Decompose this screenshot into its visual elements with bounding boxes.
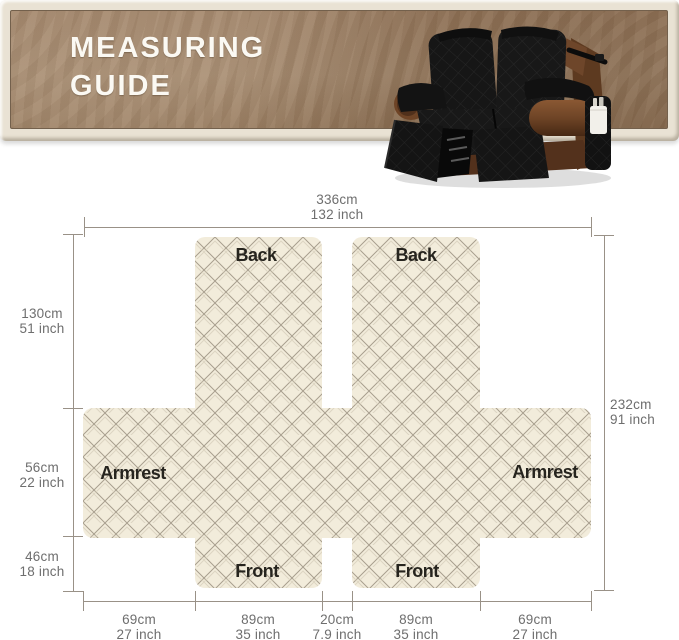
dim-label-armrest-right-width: 69cm 27 inch bbox=[496, 612, 574, 640]
tick bbox=[594, 235, 614, 236]
dim-value-inch: 35 inch bbox=[377, 627, 455, 640]
dim-value-inch: 22 inch bbox=[10, 475, 74, 490]
page-title-line2: GUIDE bbox=[70, 67, 265, 105]
tick bbox=[480, 591, 481, 611]
tick bbox=[591, 591, 592, 611]
dim-value-cm: 56cm bbox=[10, 460, 74, 475]
tick bbox=[352, 591, 353, 611]
tick bbox=[591, 217, 592, 237]
dim-value-inch: 51 inch bbox=[10, 321, 74, 336]
page-title-line1: MEASURING bbox=[70, 29, 265, 67]
tick bbox=[63, 536, 83, 537]
dim-value-inch: 35 inch bbox=[219, 627, 297, 640]
tick bbox=[84, 217, 85, 237]
dim-value-cm: 89cm bbox=[219, 612, 297, 627]
dim-value-cm: 46cm bbox=[10, 549, 74, 564]
dim-value-cm: 69cm bbox=[496, 612, 574, 627]
dim-label-total-width: 336cm 132 inch bbox=[287, 192, 387, 222]
tick bbox=[322, 591, 323, 611]
product-photo bbox=[381, 10, 635, 192]
dim-label-front-height: 46cm 18 inch bbox=[10, 549, 74, 579]
dim-label-center-gap-width: 20cm 7.9 inch bbox=[298, 612, 376, 640]
dim-label-total-height: 232cm 91 inch bbox=[610, 397, 674, 427]
label-back-right: Back bbox=[366, 245, 466, 266]
dim-label-armrest-height: 56cm 22 inch bbox=[10, 460, 74, 490]
recliner-sofa-illustration bbox=[381, 10, 635, 192]
dim-value-inch: 132 inch bbox=[287, 207, 387, 222]
label-back-left: Back bbox=[206, 245, 306, 266]
dim-value-inch: 91 inch bbox=[610, 412, 674, 427]
tick bbox=[594, 590, 614, 591]
dim-label-armrest-left-width: 69cm 27 inch bbox=[100, 612, 178, 640]
dim-label-seat-left-width: 89cm 35 inch bbox=[219, 612, 297, 640]
dim-value-cm: 232cm bbox=[610, 397, 674, 412]
tick bbox=[63, 234, 83, 235]
dim-value-inch: 27 inch bbox=[100, 627, 178, 640]
label-armrest-right: Armrest bbox=[495, 462, 595, 483]
dim-value-cm: 20cm bbox=[298, 612, 376, 627]
label-armrest-left: Armrest bbox=[83, 463, 183, 484]
dim-value-cm: 69cm bbox=[100, 612, 178, 627]
page-title: MEASURING GUIDE bbox=[70, 29, 265, 105]
dim-value-cm: 89cm bbox=[377, 612, 455, 627]
tick bbox=[83, 591, 84, 611]
dim-value-inch: 18 inch bbox=[10, 564, 74, 579]
measuring-guide-infographic: MEASURING GUIDE bbox=[0, 0, 679, 640]
tick bbox=[63, 591, 83, 592]
cover-diagram-shape bbox=[83, 237, 591, 588]
label-front-right: Front bbox=[367, 561, 467, 582]
dim-value-inch: 7.9 inch bbox=[298, 627, 376, 640]
tick bbox=[195, 591, 196, 611]
label-front-left: Front bbox=[207, 561, 307, 582]
tick bbox=[63, 408, 83, 409]
dim-value-cm: 336cm bbox=[287, 192, 387, 207]
dim-label-seat-right-width: 89cm 35 inch bbox=[377, 612, 455, 640]
dim-value-cm: 130cm bbox=[10, 306, 74, 321]
dim-value-inch: 27 inch bbox=[496, 627, 574, 640]
dim-label-back-height: 130cm 51 inch bbox=[10, 306, 74, 336]
